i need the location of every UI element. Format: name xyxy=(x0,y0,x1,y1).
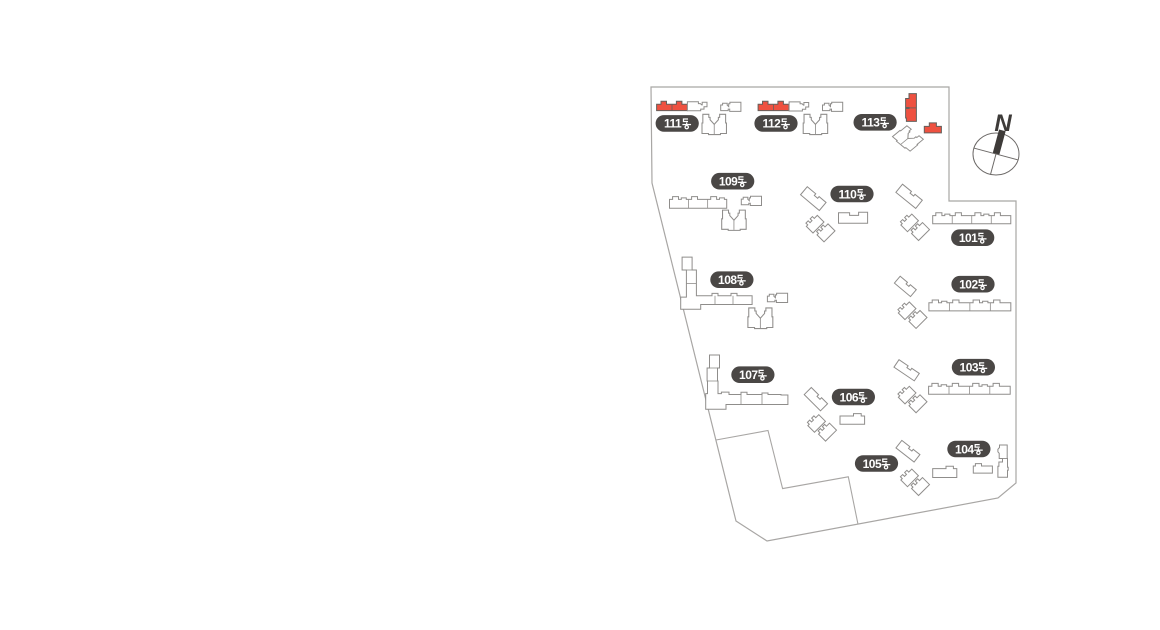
svg-text:N: N xyxy=(994,110,1012,137)
svg-text:106: 106 xyxy=(840,390,859,404)
svg-text:105: 105 xyxy=(863,457,882,471)
svg-text:113: 113 xyxy=(862,116,881,130)
svg-text:109: 109 xyxy=(719,175,738,189)
svg-text:112: 112 xyxy=(762,117,781,131)
svg-text:103: 103 xyxy=(960,361,979,375)
svg-text:102: 102 xyxy=(959,278,978,292)
svg-text:107: 107 xyxy=(739,368,758,382)
svg-text:111: 111 xyxy=(664,117,682,131)
svg-text:101: 101 xyxy=(959,231,978,245)
svg-text:108: 108 xyxy=(718,273,737,287)
svg-text:110: 110 xyxy=(838,187,857,201)
svg-text:104: 104 xyxy=(955,442,974,456)
